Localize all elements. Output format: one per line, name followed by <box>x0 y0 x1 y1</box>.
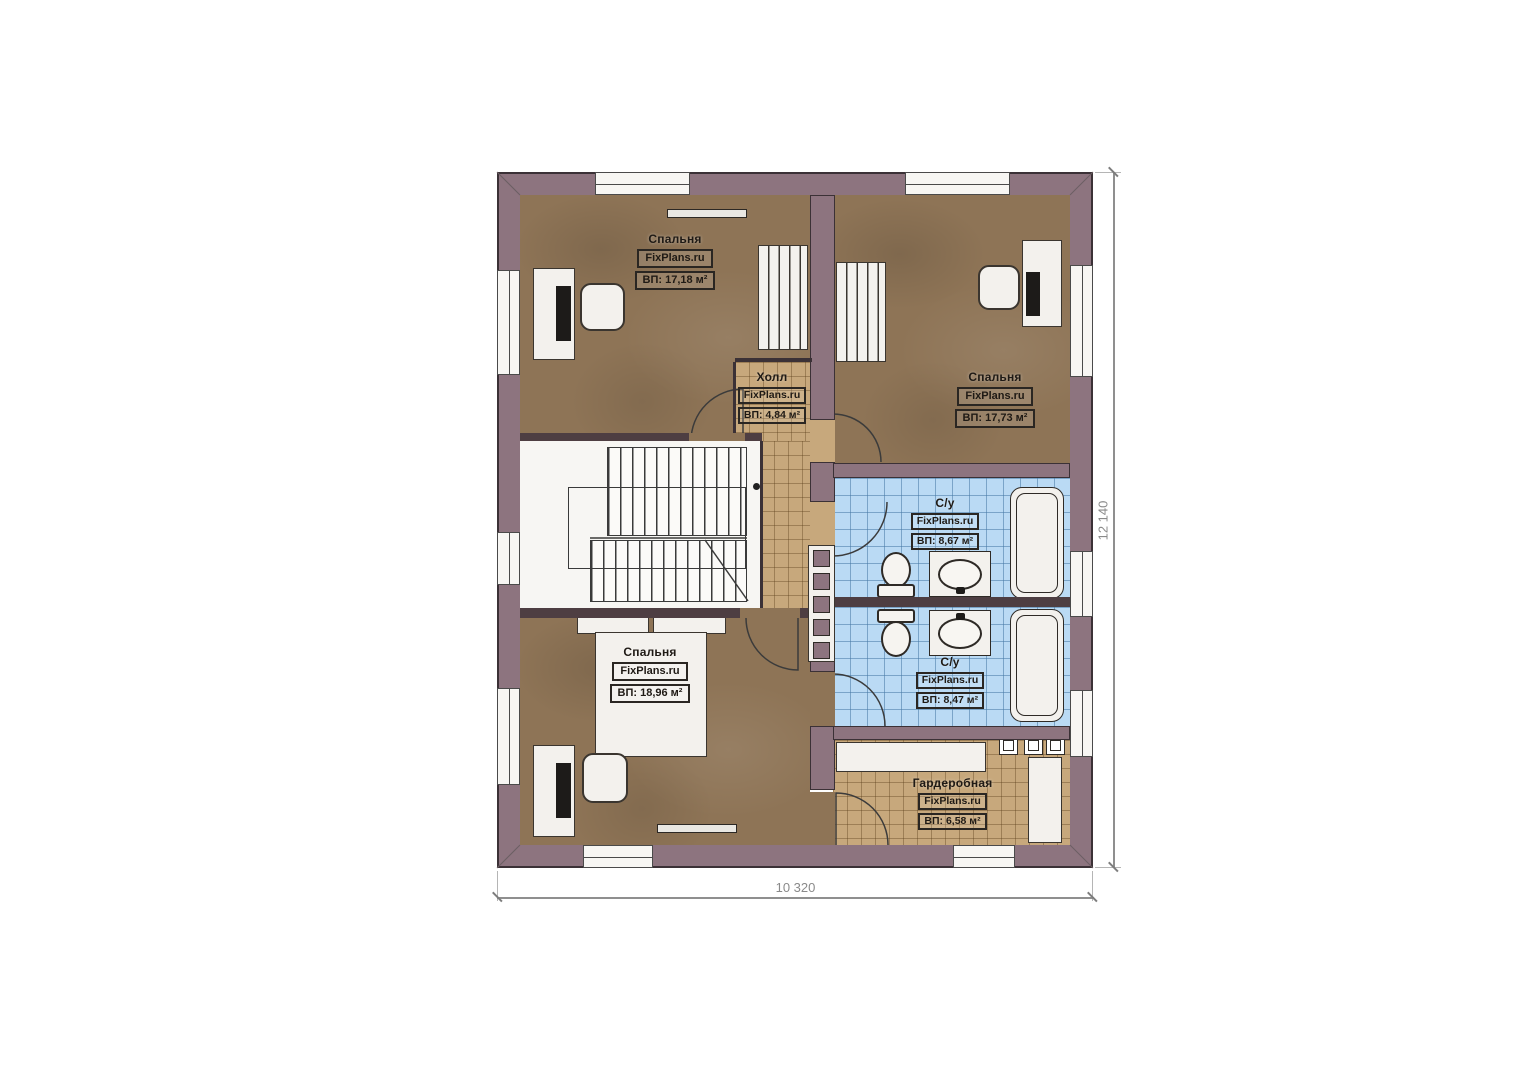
door-arcs-overlay <box>0 0 1528 1080</box>
corner-miter <box>497 845 520 868</box>
wall-central-mid <box>810 462 835 502</box>
room-label-wardrobe: Гардеробная FixPlans.ru ВП: 6,58 м² <box>875 776 1030 830</box>
window-left-1 <box>497 270 520 375</box>
watermark: FixPlans.ru <box>911 513 980 530</box>
corner-miter <box>1070 845 1093 868</box>
corner-miter <box>497 172 520 195</box>
room-name: Спальня <box>600 232 750 246</box>
stairs-break-line <box>705 540 748 601</box>
room-name: С/у <box>893 496 997 510</box>
window-bottom-2 <box>953 845 1015 868</box>
doorway-bedroom-top-left <box>689 433 745 441</box>
doorway-bathroom-top <box>810 502 835 548</box>
room-label-bedroom-top-left: Спальня FixPlans.ru ВП: 17,18 м² <box>600 232 750 290</box>
doorway-wardrobe <box>810 792 835 845</box>
shaft-square <box>813 619 830 636</box>
watermark: FixPlans.ru <box>637 249 712 268</box>
door-arc <box>833 674 885 726</box>
room-area: ВП: 6,58 м² <box>918 813 986 830</box>
wall-central-lower <box>810 726 835 790</box>
wall-hall-top <box>735 358 812 362</box>
window-top-1 <box>595 172 690 195</box>
room-label-hall: Холл FixPlans.ru ВП: 4,84 м² <box>726 370 818 424</box>
room-area: ВП: 8,47 м² <box>916 692 984 709</box>
wall-bath-wardrobe <box>833 726 1070 740</box>
wall-stairs-right <box>760 441 763 608</box>
corner-miter <box>1070 172 1093 195</box>
watermark: FixPlans.ru <box>918 793 987 810</box>
window-left-2 <box>497 532 520 585</box>
room-area: ВП: 17,73 м² <box>955 409 1036 428</box>
window-right-3 <box>1070 690 1093 757</box>
window-bottom-1 <box>583 845 653 868</box>
doorway-bedroom-bottom <box>740 608 800 618</box>
wall-bedroom-bath <box>833 463 1070 478</box>
room-label-bathroom-top: С/у FixPlans.ru ВП: 8,67 м² <box>893 496 997 550</box>
shaft-square <box>813 550 830 567</box>
room-name: С/у <box>898 655 1002 669</box>
room-label-bedroom-bottom: Спальня FixPlans.ru ВП: 18,96 м² <box>575 645 725 703</box>
room-area: ВП: 8,67 м² <box>911 533 979 550</box>
door-arc <box>746 618 798 670</box>
room-area: ВП: 17,18 м² <box>635 271 716 290</box>
room-name: Спальня <box>920 370 1070 384</box>
window-left-3 <box>497 688 520 785</box>
room-label-bathroom-bottom: С/у FixPlans.ru ВП: 8,47 м² <box>898 655 1002 709</box>
shaft-square <box>813 573 830 590</box>
wall-between-baths <box>833 597 1070 607</box>
window-right-1 <box>1070 265 1093 377</box>
window-top-2 <box>905 172 1010 195</box>
watermark: FixPlans.ru <box>738 387 807 404</box>
room-name: Холл <box>726 370 818 384</box>
doorway-bathroom-bottom <box>810 672 835 726</box>
door-arc <box>833 502 887 556</box>
room-name: Гардеробная <box>875 776 1030 790</box>
room-name: Спальня <box>575 645 725 659</box>
room-label-bedroom-top-right: Спальня FixPlans.ru ВП: 17,73 м² <box>920 370 1070 428</box>
window-right-2 <box>1070 551 1093 617</box>
watermark: FixPlans.ru <box>957 387 1032 406</box>
doorway-bedroom-top-right <box>810 420 835 462</box>
room-area: ВП: 4,84 м² <box>738 407 806 424</box>
floor-plan-page: Спальня FixPlans.ru ВП: 17,18 м² Холл Fi… <box>0 0 1528 1080</box>
shaft-square <box>813 596 830 613</box>
watermark: FixPlans.ru <box>612 662 687 681</box>
room-area: ВП: 18,96 м² <box>610 684 691 703</box>
shaft-square <box>813 642 830 659</box>
watermark: FixPlans.ru <box>916 672 985 689</box>
door-arc <box>833 414 881 462</box>
